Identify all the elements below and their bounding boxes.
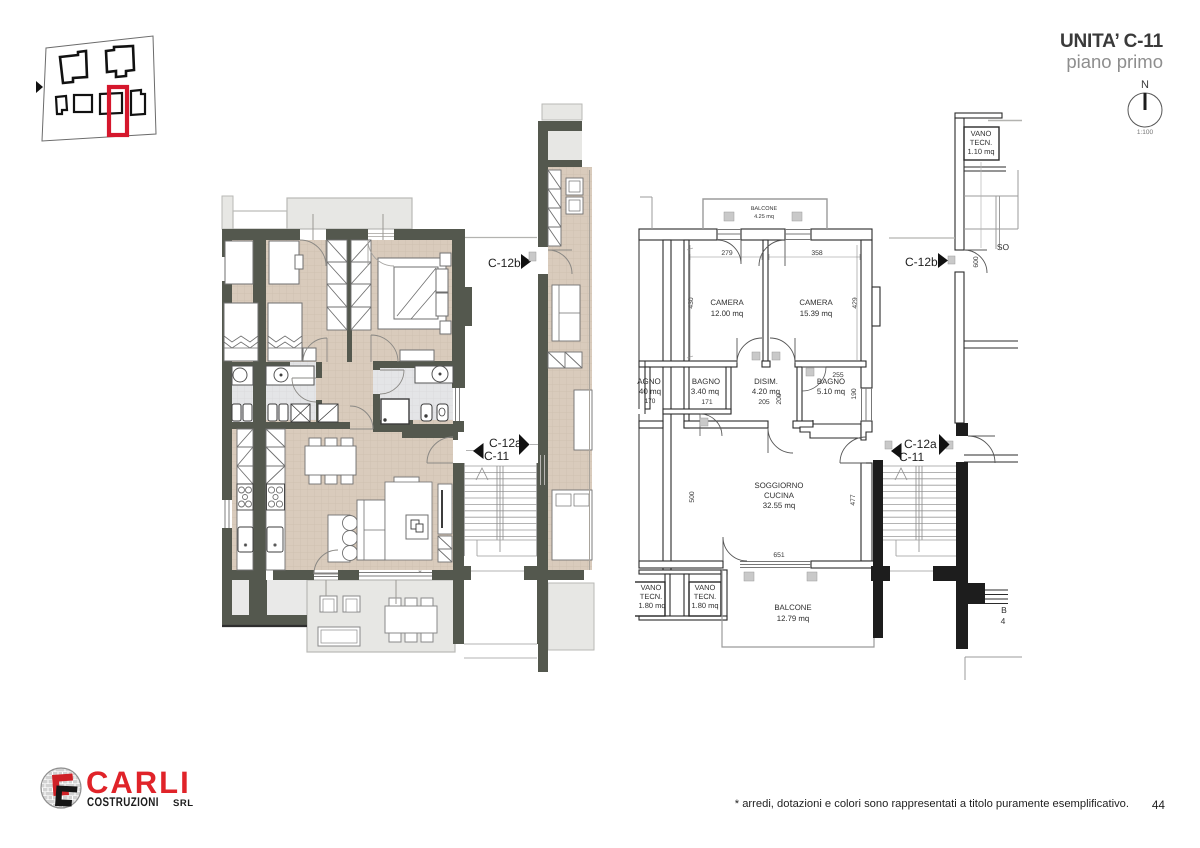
svg-text:C-12a: C-12a: [904, 437, 937, 451]
svg-text:279: 279: [721, 250, 733, 257]
svg-text:SO: SO: [997, 242, 1010, 252]
svg-text:VANO: VANO: [695, 583, 716, 592]
svg-text:VANO: VANO: [971, 129, 992, 138]
svg-text:TECN.: TECN.: [640, 592, 663, 601]
svg-text:C-12a: C-12a: [489, 436, 522, 450]
svg-text:SOGGIORNO: SOGGIORNO: [755, 481, 804, 490]
svg-text:430: 430: [688, 297, 695, 309]
svg-text:170: 170: [645, 398, 656, 405]
svg-text:VANO: VANO: [641, 583, 662, 592]
svg-text:190: 190: [851, 388, 858, 400]
svg-text:15.39 mq: 15.39 mq: [800, 309, 833, 318]
svg-text:600: 600: [973, 256, 980, 268]
svg-text:B: B: [1001, 605, 1007, 615]
svg-text:AGNO: AGNO: [637, 377, 661, 386]
svg-text:1.10 mq: 1.10 mq: [967, 147, 994, 156]
svg-text:C-12b: C-12b: [488, 256, 521, 270]
svg-text:3.40 mq: 3.40 mq: [691, 387, 719, 396]
svg-text:500: 500: [689, 491, 696, 503]
svg-text:CAMERA: CAMERA: [710, 298, 744, 307]
svg-text:C-11: C-11: [484, 449, 509, 463]
svg-text:1:100: 1:100: [1137, 129, 1154, 136]
svg-text:C-11: C-11: [899, 450, 924, 464]
svg-text:255: 255: [832, 372, 844, 379]
svg-text:205: 205: [758, 399, 770, 406]
svg-text:358: 358: [811, 250, 823, 257]
svg-text:CAMERA: CAMERA: [799, 298, 833, 307]
svg-text:171: 171: [701, 399, 713, 406]
svg-text:C-12b: C-12b: [905, 255, 938, 269]
svg-text:DISIM.: DISIM.: [754, 377, 778, 386]
svg-text:40 mq: 40 mq: [639, 387, 661, 396]
svg-text:651: 651: [773, 552, 785, 559]
svg-text:12.00 mq: 12.00 mq: [711, 309, 744, 318]
svg-text:429: 429: [852, 297, 859, 309]
svg-text:BALCONE: BALCONE: [774, 603, 811, 612]
svg-text:12.79 mq: 12.79 mq: [777, 614, 810, 623]
svg-text:4.25 mq: 4.25 mq: [754, 214, 774, 220]
svg-text:TECN.: TECN.: [694, 592, 717, 601]
svg-text:5.10 mq: 5.10 mq: [817, 387, 845, 396]
svg-text:BALCONE: BALCONE: [751, 206, 778, 212]
svg-text:1.80 mq: 1.80 mq: [691, 601, 718, 610]
svg-text:TECN.: TECN.: [970, 138, 993, 147]
svg-text:1.80 mq: 1.80 mq: [638, 601, 665, 610]
svg-text:477: 477: [850, 494, 857, 506]
svg-text:200: 200: [776, 393, 783, 405]
svg-text:CUCINA: CUCINA: [764, 491, 795, 500]
svg-text:SRL: SRL: [173, 798, 194, 809]
svg-text:N: N: [1141, 79, 1149, 91]
svg-text:32.55 mq: 32.55 mq: [763, 501, 796, 510]
svg-text:4: 4: [1001, 616, 1006, 626]
svg-text:BAGNO: BAGNO: [692, 377, 720, 386]
svg-text:COSTRUZIONI: COSTRUZIONI: [87, 795, 159, 809]
